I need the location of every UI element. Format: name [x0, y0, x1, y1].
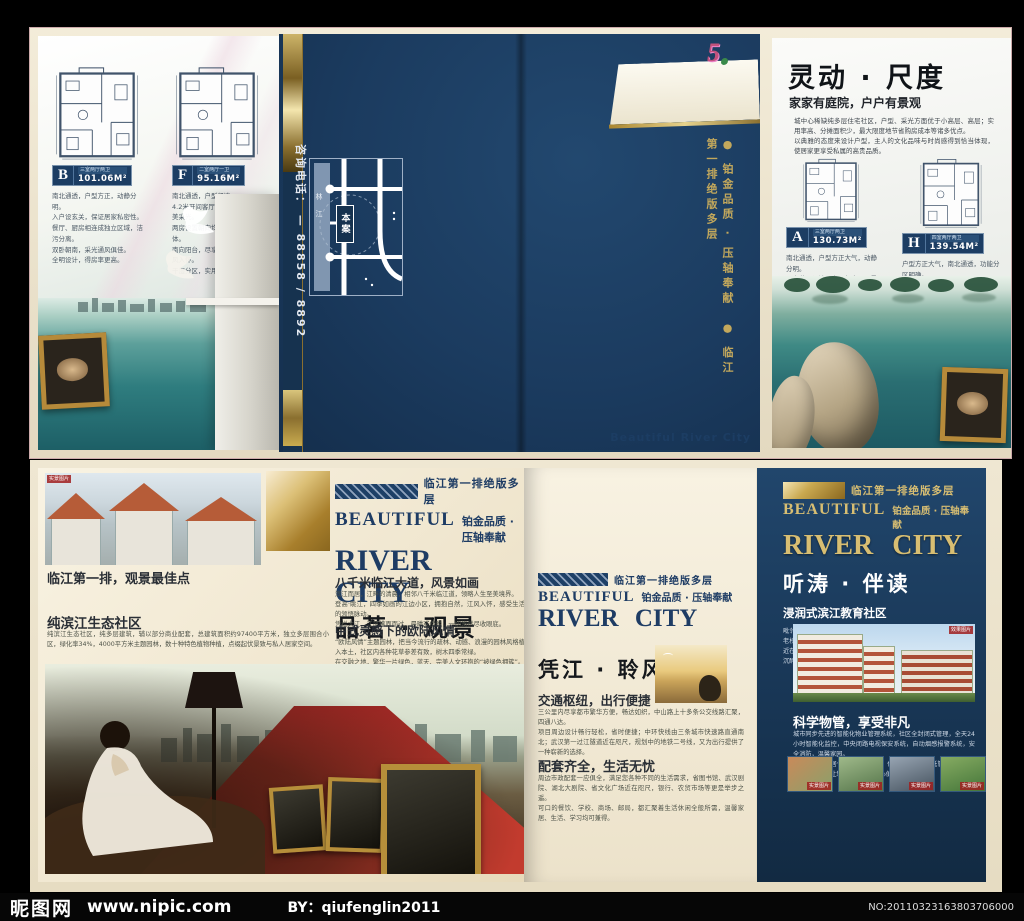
brand-tab	[608, 59, 760, 124]
seaside-photo	[655, 645, 727, 703]
plan-letter: H	[903, 234, 926, 253]
interior-photo	[45, 664, 524, 874]
greenery	[793, 693, 975, 702]
tree	[858, 279, 882, 291]
tagline: 临江第一排绝版多层	[851, 483, 955, 498]
photo-caption-chip: 效果图片	[949, 626, 973, 634]
tagline: 临江第一排绝版多层	[614, 572, 713, 587]
painting-figure	[957, 392, 989, 415]
framed-photo	[326, 777, 387, 853]
plan-spec: 二室两厅一卫	[197, 167, 240, 174]
house-facade	[115, 509, 173, 565]
map-site-label: 本案	[336, 205, 354, 243]
beautiful-label: BEAUTIFUL	[538, 589, 635, 606]
bottom-right-page: 临江第一排绝版多层 BEAUTIFUL 铂金品质 · 压轴奉献 RIVER CI…	[757, 468, 986, 882]
logo-5: 5	[707, 38, 720, 68]
heading-avenue: 八千米临江大道，风景如画	[335, 574, 479, 591]
amenities-paragraph: 周边市政配套一应俱全，满足您各种不同的生活需求，省图书馆、武汉剧院、湖北大剧院、…	[538, 774, 744, 824]
thumb-caption: 实景图片	[858, 782, 882, 790]
tree	[784, 278, 810, 292]
bottom-left-page: 实景图片 临江第一排绝版多层 BEAUTIFUL 铂金品质 · 压轴奉献 RIV…	[38, 468, 524, 882]
map-river-label: 林江	[314, 193, 324, 227]
tagline: 临江第一排绝版多层	[424, 475, 524, 507]
gold-bar	[783, 482, 845, 499]
plan-spec: 四室两厅两卫	[930, 235, 979, 242]
traffic-paragraph: 三公里内尽享都市繁华方便，畅达如织，中山路上十多条公交线路汇聚，四通八达。 项目…	[538, 708, 744, 758]
top-left-page: B 三室两厅两卫 101.06M² 南北通透，户型方正，动静分明。 入户设玄关，…	[38, 36, 279, 450]
gold-block	[266, 471, 330, 551]
spine-slogan: ● 铂金品质 · 压轴奉献 ● 临江第一排绝版多层	[703, 138, 735, 388]
quality-label: 铂金品质 · 压轴奉献	[892, 503, 971, 531]
top-right-page: 灵动 · 尺度 家家有庭院，户户有景观 城中心稀缺纯多层住宅社区，户型、采光方面…	[772, 38, 1011, 448]
plan-letter: B	[53, 166, 74, 185]
page-title: 灵动 · 尺度	[788, 56, 946, 95]
heading-garden: 中式灵感下的欧陆风情	[335, 622, 455, 639]
plan-area: 130.73M²	[813, 236, 862, 246]
heading-view: 临江第一排，观景最佳点	[47, 568, 190, 587]
section-title: 凭江 · 聆风	[538, 654, 666, 684]
site-url: www.nipic.com	[87, 897, 231, 917]
gold-band-bottom	[283, 390, 302, 446]
plan-area: 101.06M²	[78, 174, 127, 184]
house-facade	[51, 517, 101, 565]
plan-letter: A	[787, 228, 809, 247]
apartment-block	[863, 646, 895, 696]
building-photo: 效果图片	[793, 624, 975, 702]
woman-figure	[63, 710, 243, 860]
top-spread: B 三室两厅两卫 101.06M² 南北通透，户型方正，动静分明。 入户设玄关，…	[30, 28, 1011, 458]
floorplan-a-badge: A 三室两厅两卫 130.73M²	[786, 227, 867, 248]
quality-label: 铂金品质 · 压轴奉献	[642, 589, 733, 604]
apartment-block	[901, 650, 973, 696]
tree	[964, 277, 998, 292]
cover-fold-line	[515, 34, 527, 452]
photo-caption-chip: 实景图片	[47, 475, 71, 483]
hatch-bar	[335, 484, 418, 499]
plan-spec: 三室两厅两卫	[813, 229, 862, 236]
tree	[816, 276, 850, 293]
author-credit: BY：qiufenglin2011	[287, 897, 440, 917]
roof-shape	[109, 483, 179, 511]
river-city-title: RIVER CITY	[538, 606, 744, 632]
framed-portrait	[381, 764, 481, 874]
floorplan-h-drawing	[902, 158, 1000, 228]
bottom-spread: 实景图片 临江第一排绝版多层 BEAUTIFUL 铂金品质 · 压轴奉献 RIV…	[30, 460, 1002, 892]
plan-spec: 三室两厅两卫	[78, 167, 127, 174]
house-facade	[187, 519, 255, 565]
sea-scene	[772, 276, 1011, 448]
brochure-header: 临江第一排绝版多层 BEAUTIFUL 铂金品质 · 压轴奉献 RIVER CI…	[538, 572, 744, 632]
beautiful-label: BEAUTIFUL	[335, 509, 455, 531]
floorplan-a-drawing	[786, 158, 876, 222]
location-map: 本案 林江	[309, 158, 403, 296]
cover-page: 咨询电话： — 88858 / 8892 本案 林江	[279, 34, 760, 452]
sitting-figure	[699, 675, 721, 701]
beautiful-label: BEAUTIFUL	[783, 501, 885, 519]
plan-description: 南北通透，户型方正，动静分明。 入户设玄关，保证居家私密性。 餐厅、厨房相连成独…	[52, 191, 146, 266]
map-drawing	[310, 159, 402, 295]
phone-number: 咨询电话： — 88858 / 8892	[293, 144, 309, 364]
watermark-footer: 昵图网 www.nipic.com BY：qiufenglin2011 NO:2…	[0, 893, 1024, 921]
intro-paragraph: 城中心稀缺纯多层住宅社区，户型、采光方面优于小高层、高层；实用率高、分摊面积少，…	[794, 116, 994, 156]
thumb-caption: 实景图片	[807, 782, 831, 790]
apartment-block	[797, 634, 863, 696]
brand-title: Beautiful River City	[610, 431, 751, 444]
quality-label: 铂金品质 · 压轴奉献	[462, 513, 524, 545]
serial-number: NO:20110323163803706000	[868, 902, 1014, 913]
wall-painting	[38, 332, 110, 409]
tree-reflection	[892, 294, 924, 303]
dove-icon	[156, 204, 242, 300]
heading-eco: 纯滨江生态社区	[47, 612, 142, 632]
tree	[928, 279, 954, 292]
roof-shape	[185, 497, 257, 521]
rooftops-photo: 实景图片	[45, 473, 261, 565]
eco-paragraph: 纯滨江生态社区，纯多层建筑，辅以部分商业配套，总建筑面积约97400平方米，独立…	[47, 630, 329, 650]
plan-area: 95.16M²	[197, 174, 240, 184]
site-logo: 昵图网	[10, 894, 73, 921]
heading-management: 科学物管，享受非凡	[793, 712, 910, 731]
tree	[890, 277, 920, 292]
framed-photo	[269, 784, 327, 854]
floorplan-b-badge: B 三室两厅两卫 101.06M²	[52, 165, 132, 186]
river-city-title: RIVER CITY	[783, 531, 971, 560]
heading-traffic: 交通枢纽，出行便捷	[538, 690, 651, 709]
edu-subtitle: 浸润式滨江教育社区	[783, 605, 971, 621]
thumb-caption: 实景图片	[960, 782, 984, 790]
floorplan-b: B 三室两厅两卫 101.06M² 南北通透，户型方正，动静分明。 入户设玄关，…	[52, 66, 146, 277]
heading-amenities: 配套齐全，生活无忧	[538, 756, 655, 775]
floorplan-f-badge: F 二室两厅一卫 95.16M²	[172, 165, 245, 186]
floor-lamp-shade	[185, 672, 243, 708]
plan-letter: F	[173, 166, 193, 185]
thumbnail-security: 实景图片	[889, 756, 935, 792]
floorplan-b-drawing	[52, 66, 142, 160]
thumb-caption: 实景图片	[909, 782, 933, 790]
section-title: 听涛 · 伴读	[783, 568, 971, 598]
painting-figure	[56, 357, 89, 381]
bottom-middle-page: 临江第一排绝版多层 BEAUTIFUL 铂金品质 · 压轴奉献 RIVER CI…	[524, 468, 756, 882]
thumbnail-court: 实景图片	[940, 756, 986, 792]
floorplan-h-badge: H 四室两厅两卫 139.54M²	[902, 233, 984, 254]
tree-reflection	[962, 293, 996, 302]
wall-painting	[940, 367, 1009, 443]
thumbnail-garden: 实景图片	[838, 756, 884, 792]
thumbnail-strip: 实景图片 实景图片 实景图片 实景图片	[787, 756, 986, 792]
floorplan-f-drawing	[172, 66, 262, 160]
tree-reflection	[812, 294, 848, 304]
hatch-bar	[538, 573, 608, 586]
gull-icon	[663, 653, 673, 658]
plan-area: 139.54M²	[930, 242, 979, 252]
roof-shape	[47, 493, 105, 519]
page-subtitle: 家家有庭院，户户有景观	[789, 94, 921, 111]
thumbnail-buildings: 实景图片	[787, 756, 833, 792]
